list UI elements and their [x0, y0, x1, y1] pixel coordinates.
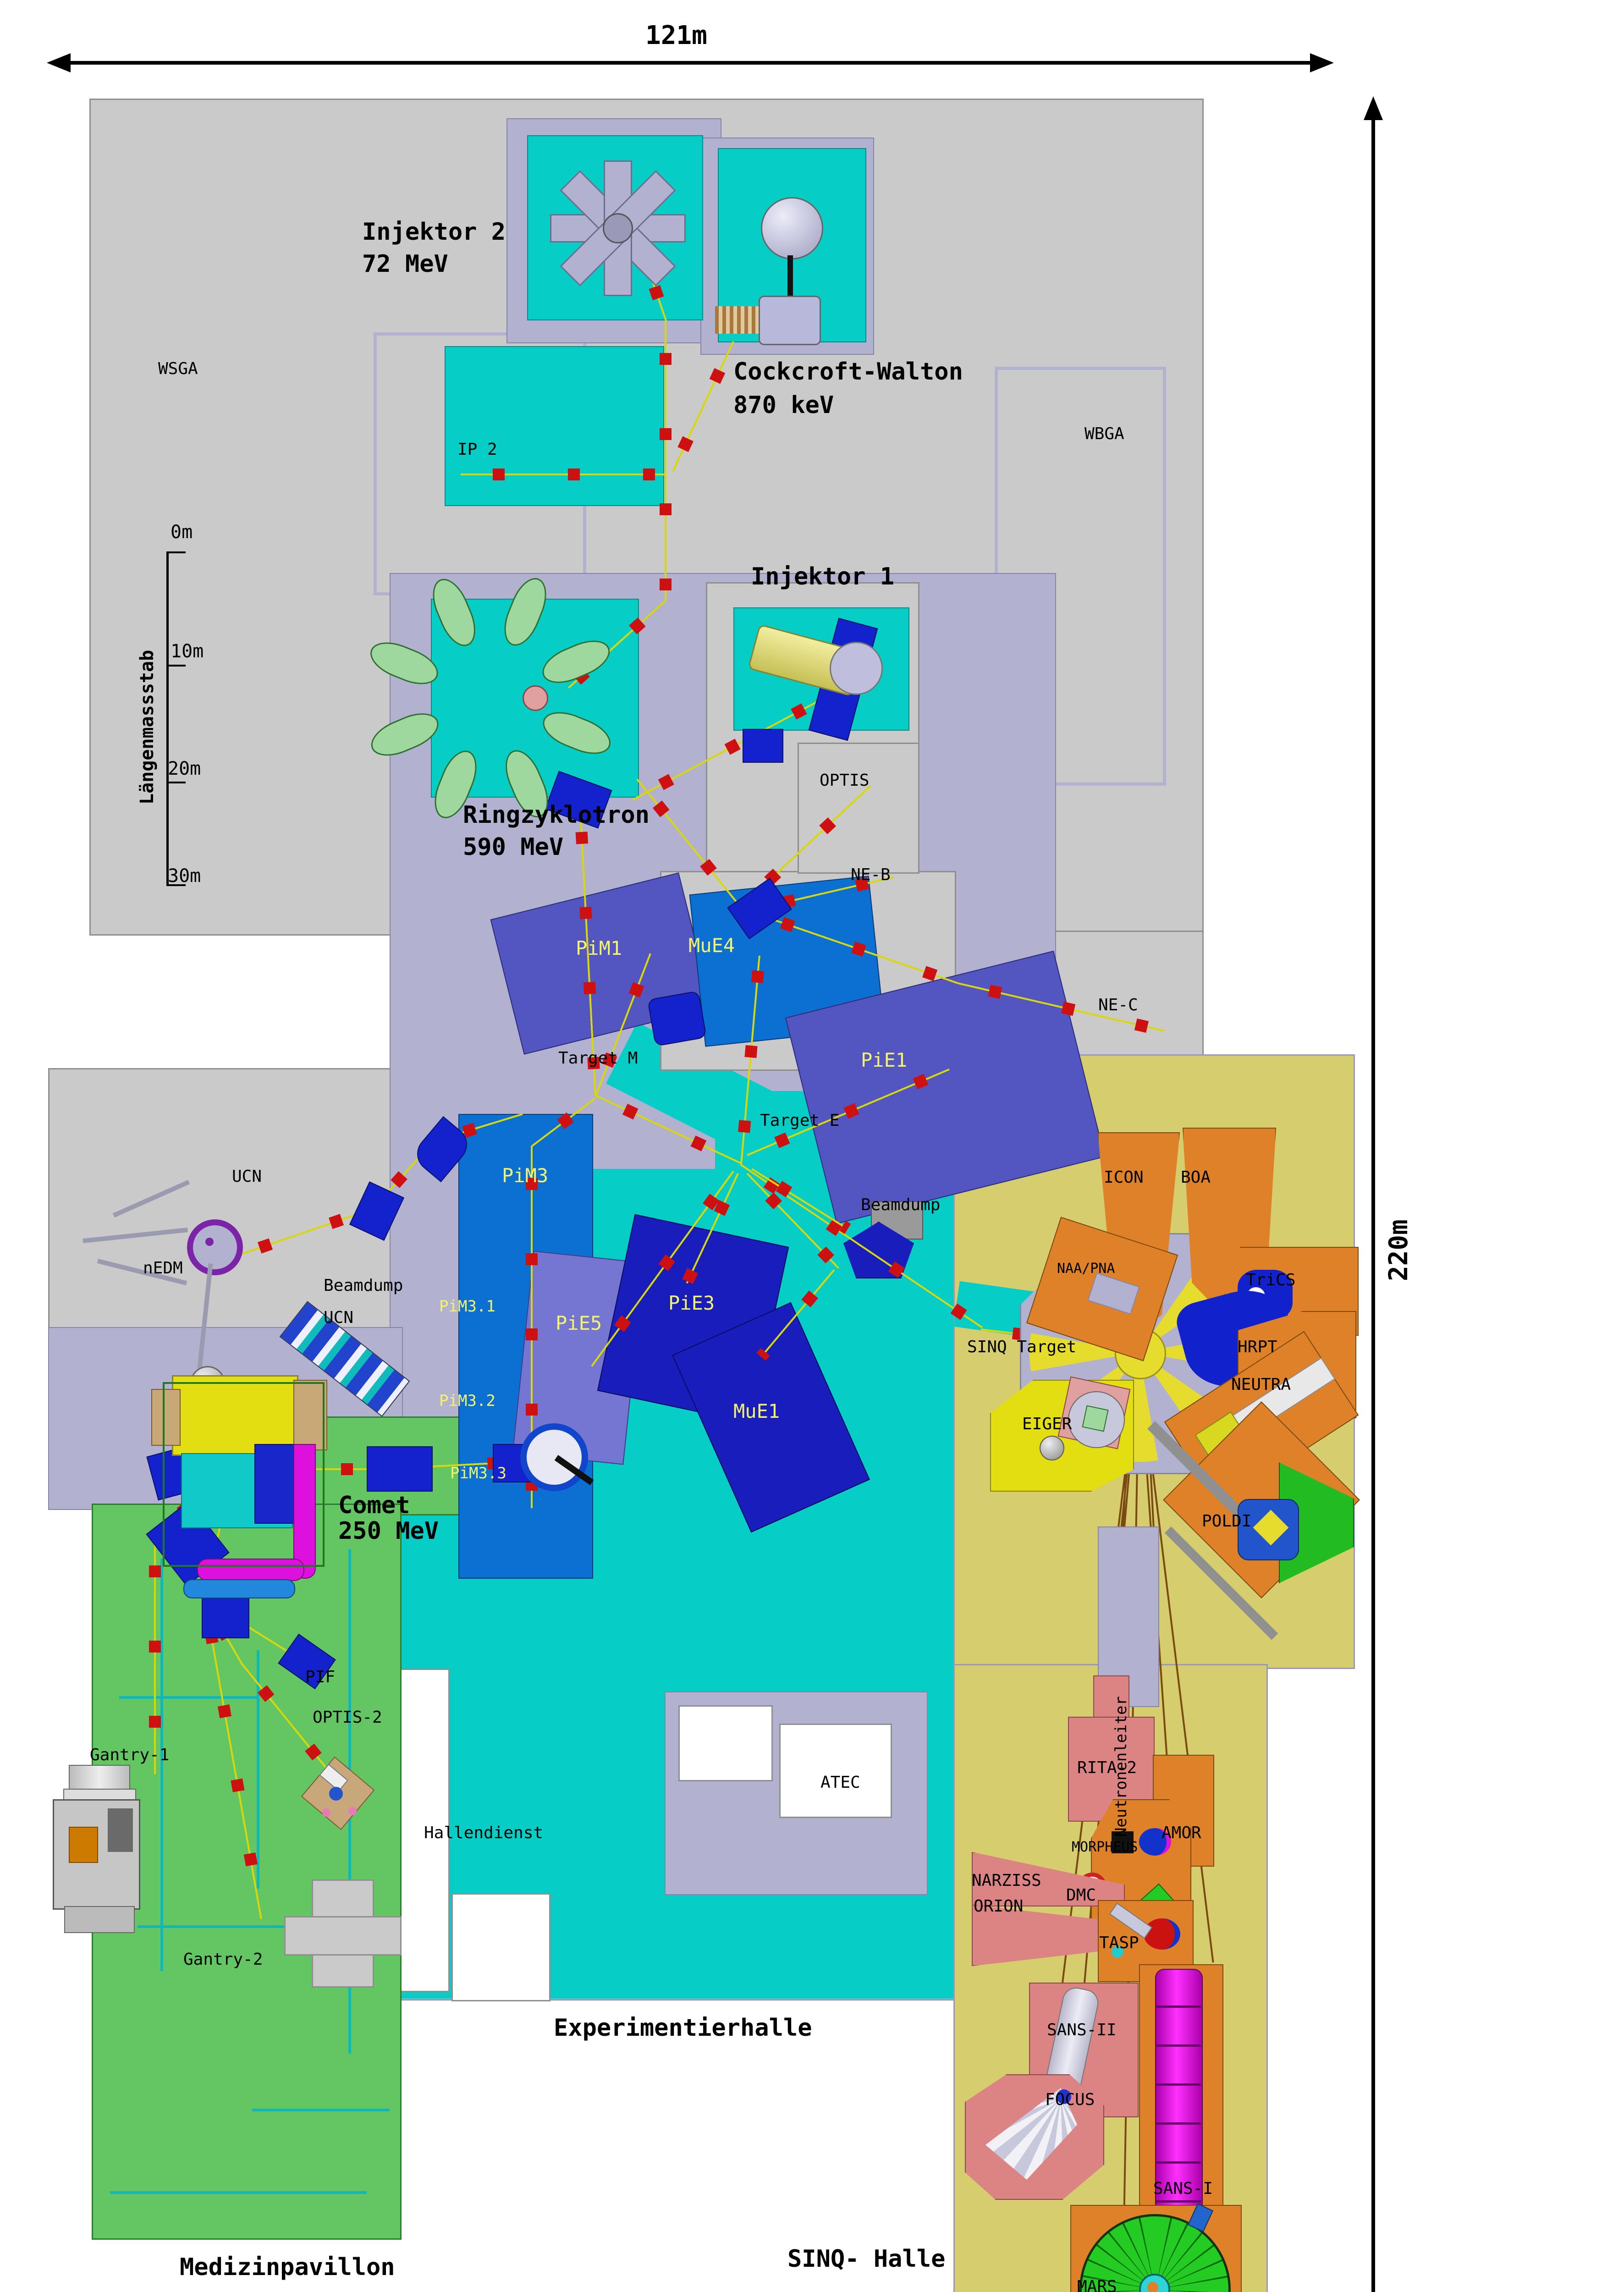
label-dmc: DMC: [1066, 1887, 1096, 1905]
scalebar-tick-label: 10m: [171, 642, 204, 661]
label-morpheus: MORPHEUS: [1072, 1840, 1138, 1855]
label-pim3-3: PiM3.3: [450, 1465, 506, 1482]
nedm-pipe-blue: [183, 1579, 295, 1598]
label-mue4: MuE4: [688, 935, 735, 956]
label-pif: PIF: [305, 1669, 335, 1686]
label-ne-c: NE-C: [1098, 997, 1138, 1014]
tasp-detector: [1144, 1918, 1180, 1950]
label-injektor1: Injektor 1: [751, 564, 894, 590]
label-ne-b: NE-B: [851, 866, 891, 884]
scalebar-tick-label: 30m: [168, 866, 201, 886]
atec-inner-room: [779, 1724, 892, 1818]
ip2-hall: [445, 346, 664, 506]
label-pim3: PiM3: [502, 1165, 548, 1186]
label-neutra: NEUTRA: [1231, 1376, 1291, 1394]
scalebar-title: Längenmassstab: [138, 650, 157, 804]
label-cockcroft-energy: 870 keV: [733, 392, 834, 418]
scalebar-tick-label: 20m: [168, 759, 201, 779]
label-injektor2-energy: 72 MeV: [362, 251, 448, 277]
label-trics: TriCS: [1246, 1272, 1295, 1289]
label-cockcroft: Cockcroft-Walton: [733, 359, 963, 385]
label-pie5: PiE5: [556, 1313, 602, 1333]
label-wsga: WSGA: [158, 360, 198, 378]
nedm-outline: [163, 1382, 325, 1567]
label-ucn: UCN: [232, 1168, 262, 1186]
label-target-m: Target M: [558, 1050, 638, 1068]
label-pim3-2: PiM3.2: [439, 1393, 495, 1410]
eiger-sphere: [1040, 1436, 1064, 1460]
label-ip2: IP 2: [457, 441, 497, 459]
injektor2-center: [603, 213, 633, 243]
dipole-magnet: [647, 991, 707, 1047]
hall-room: [451, 1893, 551, 2001]
label-medizinpavillon: Medizinpavillon: [180, 2254, 395, 2280]
medical-wall: [110, 2191, 367, 2194]
label-optis: OPTIS: [820, 772, 869, 790]
comet-cyclotron: [520, 1423, 588, 1491]
label-tasp: TASP: [1099, 1934, 1139, 1952]
label-nedm: nEDM: [143, 1260, 183, 1278]
label-eiger: EIGER: [1022, 1416, 1072, 1433]
label-gantry2: Gantry-2: [183, 1951, 263, 1969]
label-pim3-1: PiM3.1: [439, 1298, 495, 1315]
cockcroft-sphere: [761, 197, 823, 259]
gantry1-nozzle: [69, 1827, 98, 1863]
label-optis2: OPTIS-2: [313, 1709, 382, 1727]
label-beamdump: Beamdump: [861, 1196, 940, 1214]
label-sinq-halle: SINQ- Halle: [787, 2246, 945, 2272]
gantry1-counterweight: [108, 1808, 133, 1852]
width-dimension-label: 121m: [645, 22, 707, 50]
scalebar-tick-label: 0m: [171, 523, 193, 542]
optis2-scope: [329, 1787, 343, 1801]
optis-room: [798, 743, 919, 874]
height-arrow-line: [1371, 119, 1375, 2292]
cockcroft-coil: [715, 306, 759, 334]
label-injektor2: Injektor 2: [362, 219, 506, 245]
gantry1-base: [64, 1906, 135, 1933]
scalebar-line: [166, 551, 169, 886]
label-wbga: WBGA: [1085, 425, 1124, 443]
label-sinq-target: SINQ Target: [967, 1339, 1076, 1356]
label-beamdump-ucn-2: UCN: [324, 1309, 353, 1327]
atec-inner-room: [678, 1705, 773, 1781]
label-boa: BOA: [1181, 1169, 1211, 1187]
label-comet: Comet: [338, 1493, 410, 1518]
label-hrpt: HRPT: [1238, 1339, 1277, 1356]
label-orion: ORION: [974, 1898, 1023, 1916]
ucn-source-wheel: [187, 1219, 243, 1275]
label-experimentierhalle: Experimentierhalle: [554, 2015, 812, 2041]
gantry2-structure: [284, 1916, 402, 1956]
label-pie3: PiE3: [668, 1293, 715, 1313]
label-sans1: SANS-I: [1153, 2180, 1213, 2198]
ucn-source-hub: [205, 1238, 214, 1246]
label-pie1: PiE1: [861, 1050, 907, 1070]
height-dimension-label: 220m: [1385, 1219, 1413, 1281]
dipole-magnet: [743, 729, 783, 763]
label-atec: ATEC: [820, 1774, 860, 1792]
optis2-dot: [322, 1808, 330, 1817]
label-target-e: Target E: [760, 1112, 839, 1130]
psi-facility-map: { "dimensions": {"width_label": "121m", …: [0, 0, 1624, 2292]
medical-wall: [119, 1696, 257, 1699]
optis2-dot: [348, 1807, 357, 1815]
scalebar-tick: [166, 665, 186, 667]
dipole-magnet: [202, 1593, 249, 1638]
label-ringzyklotron-energy: 590 MeV: [463, 834, 563, 860]
label-ringzyklotron: Ringzyklotron: [463, 802, 650, 828]
beamline: [660, 321, 672, 601]
cockcroft-tank: [759, 296, 821, 345]
label-narziss: NARZISS: [972, 1872, 1041, 1890]
scalebar-tick: [166, 551, 186, 553]
label-hallendienst: Hallendienst: [424, 1824, 543, 1842]
label-mue1: MuE1: [733, 1401, 780, 1421]
label-icon: ICON: [1104, 1169, 1144, 1187]
width-arrow-left-head: [47, 53, 71, 72]
label-focus: FOCUS: [1045, 2091, 1095, 2109]
label-sans2: SANS-II: [1047, 2022, 1117, 2039]
label-rita2: RITA-2: [1077, 1759, 1137, 1777]
label-gantry1: Gantry-1: [90, 1747, 169, 1764]
mars-center: [1147, 2282, 1158, 2292]
label-mars: MARS: [1077, 2278, 1117, 2292]
beamline-ip2: [461, 468, 666, 480]
label-beamdump-ucn-1: Beamdump: [324, 1277, 403, 1295]
injektor1-disc: [830, 642, 883, 695]
label-naa-pna: NAA/PNA: [1057, 1262, 1115, 1276]
gantry1-top: [69, 1765, 130, 1792]
eiger-sample: [1082, 1405, 1108, 1432]
cockcroft-column: [787, 255, 793, 298]
height-arrow-top-head: [1364, 96, 1383, 120]
ring-center: [523, 685, 548, 711]
width-arrow-line: [69, 61, 1312, 65]
label-pim1: PiM1: [576, 938, 622, 959]
label-comet-energy: 250 MeV: [338, 1518, 439, 1544]
scalebar-tick: [166, 782, 186, 783]
beamline-gantry1: [149, 1533, 161, 1774]
label-amor: AMOR: [1162, 1824, 1201, 1842]
dipole-magnet: [367, 1446, 433, 1492]
medical-wall: [252, 2109, 390, 2111]
label-poldi: POLDI: [1202, 1513, 1251, 1531]
width-arrow-right-head: [1310, 53, 1334, 72]
